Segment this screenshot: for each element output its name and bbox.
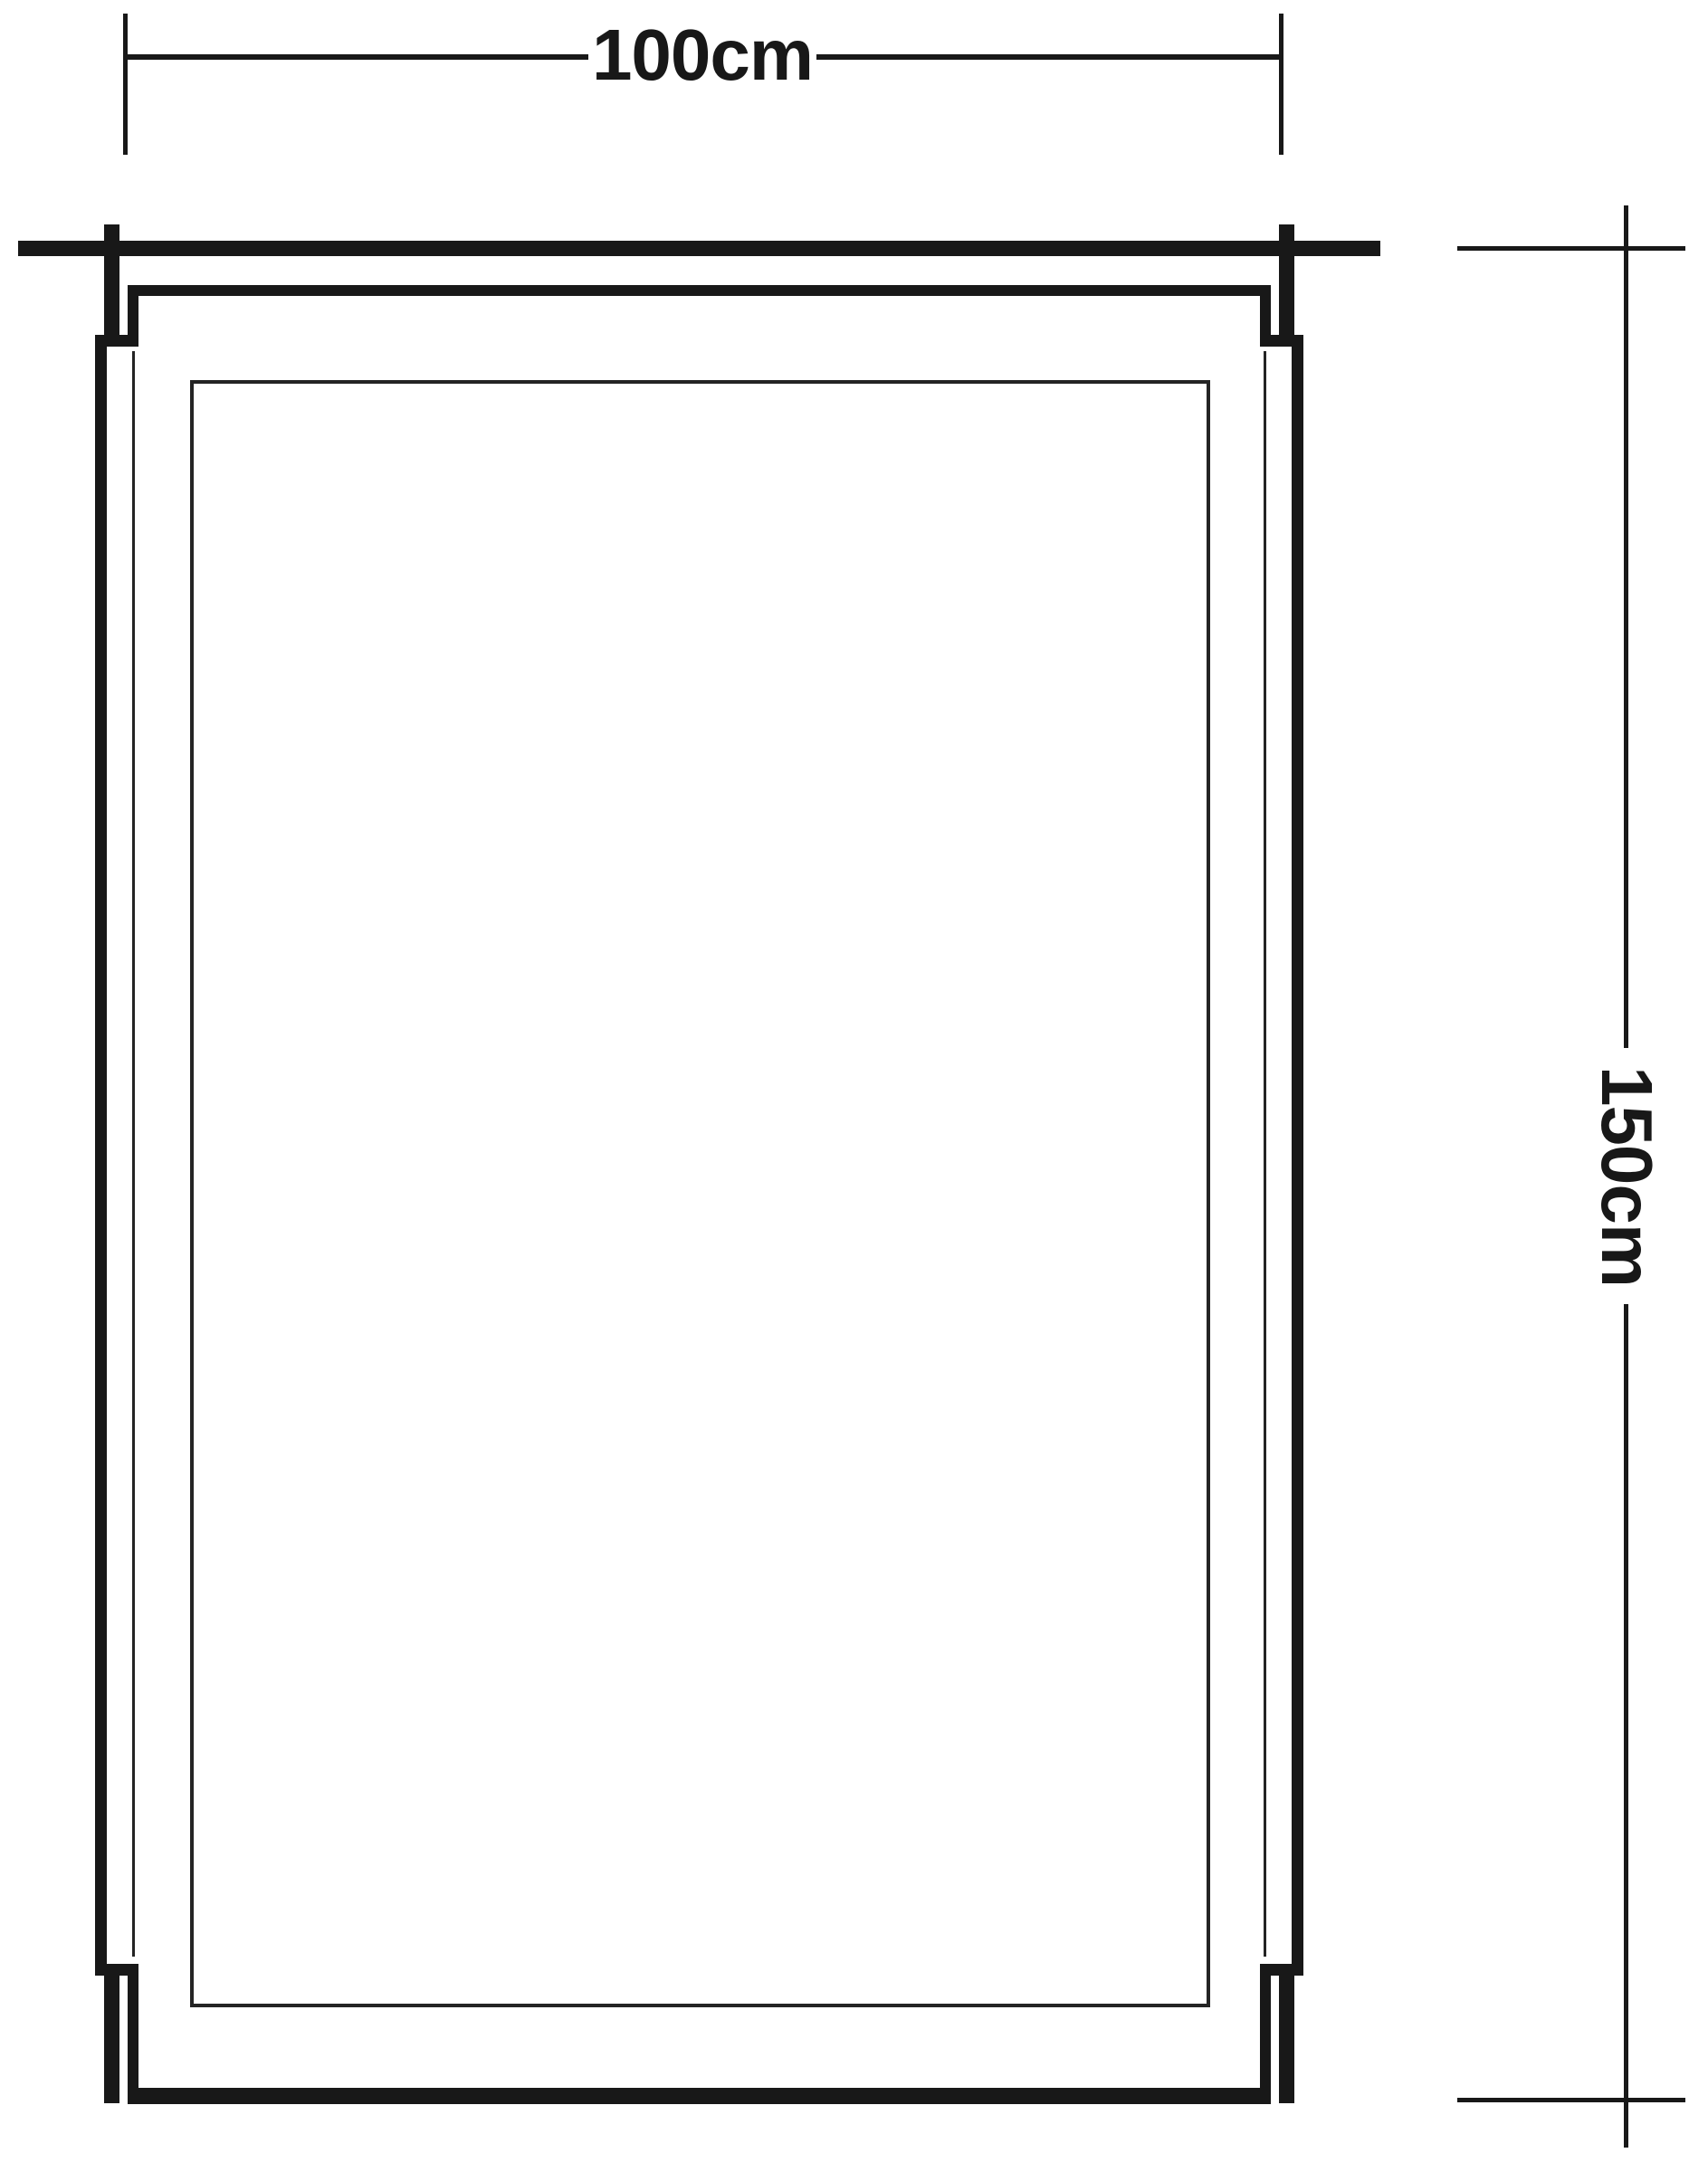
height-dim-label: 150cm	[1590, 1066, 1663, 1287]
right-bottom-step	[1260, 1964, 1303, 1976]
right-flange-bar-top	[1279, 224, 1294, 347]
right-jamb-outer-line	[1292, 335, 1303, 1976]
width-dim-label: 100cm	[579, 19, 825, 91]
frame-bottom-edge	[128, 2088, 1271, 2104]
window-technical-drawing: 100cm 150cm	[0, 0, 1708, 2172]
left-flange-bar-bottom	[104, 1976, 119, 2103]
left-flange-bar-top	[104, 224, 119, 347]
right-frame-edge-bar-bottom	[1260, 1976, 1271, 2104]
inner-panel-outline	[190, 380, 1210, 2007]
height-dim-line-lower-segment	[1624, 1304, 1628, 2148]
right-flange-bar-bottom	[1279, 1976, 1294, 2103]
head-wall-line	[18, 241, 1380, 256]
width-dim-extension-line-left	[123, 14, 128, 155]
left-jamb-outer-line	[95, 335, 107, 1976]
left-jamb-inner-line	[132, 351, 135, 1957]
width-dim-line-left-segment	[125, 54, 588, 60]
height-dim-tick-bottom	[1457, 2098, 1685, 2102]
left-frame-edge-bar-bottom	[128, 1976, 138, 2104]
height-dim-line-upper-segment	[1624, 205, 1628, 1048]
height-dim-tick-top	[1457, 246, 1685, 251]
left-bottom-step	[95, 1964, 138, 1976]
width-dim-line-right-segment	[816, 54, 1282, 60]
width-dim-extension-line-right	[1279, 14, 1283, 155]
right-jamb-inner-line	[1264, 351, 1266, 1957]
frame-top-edge	[128, 285, 1271, 296]
